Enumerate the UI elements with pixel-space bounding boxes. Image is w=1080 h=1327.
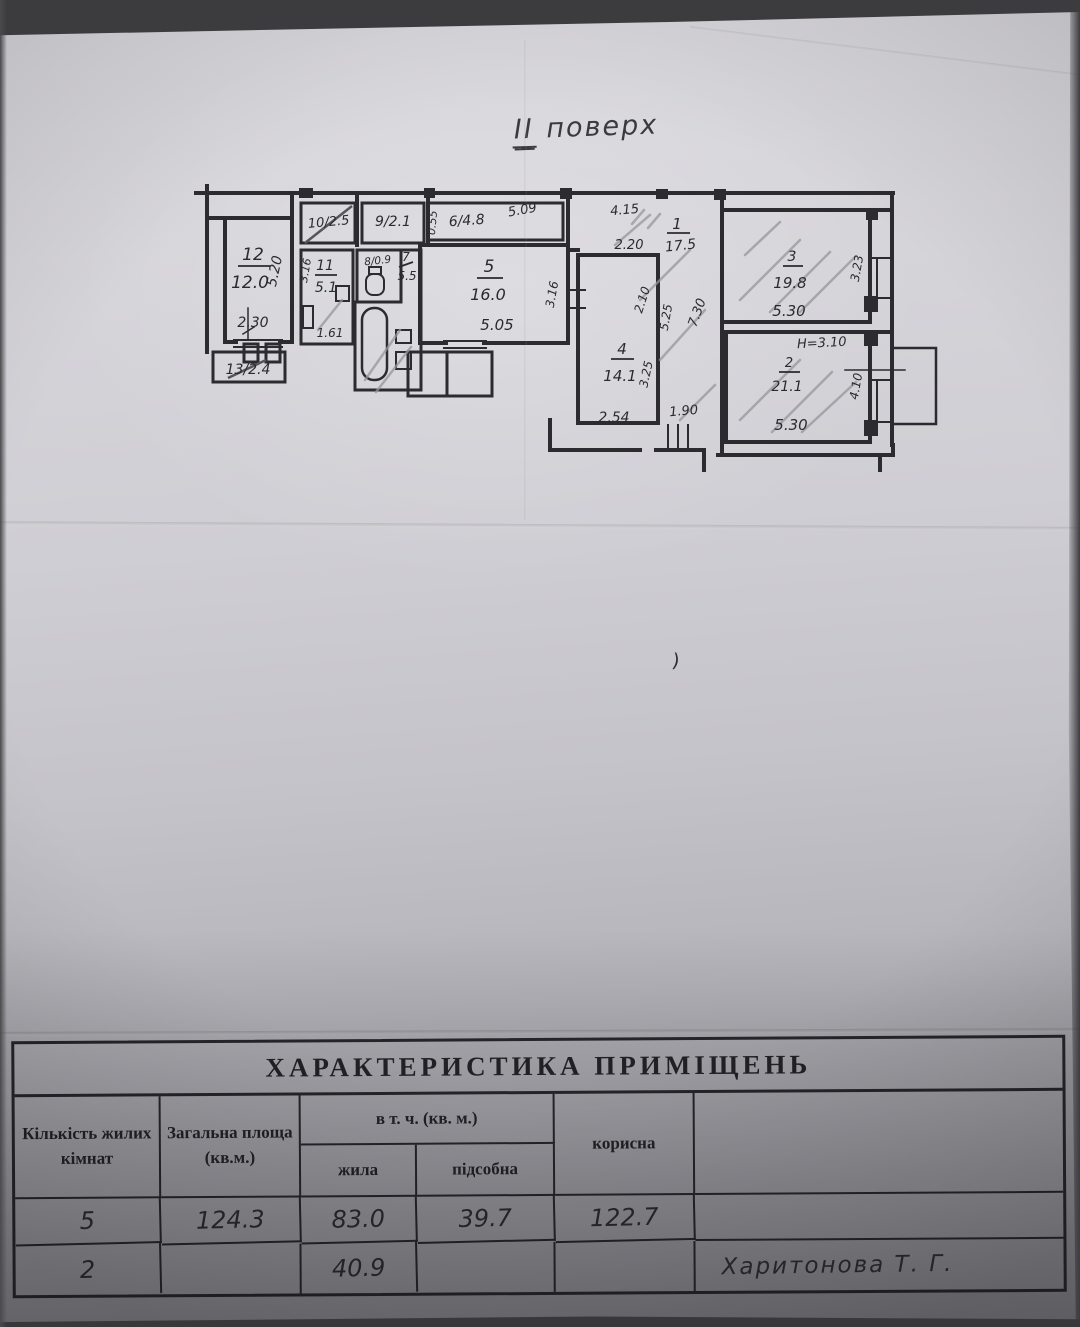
dim-2-20: 2.20 bbox=[615, 238, 644, 253]
room5-window bbox=[444, 341, 486, 348]
row2-room-count: 2 bbox=[15, 1243, 162, 1296]
pillar bbox=[656, 189, 668, 199]
header-total-area: Загальна площа (кв.м.) bbox=[161, 1095, 302, 1198]
header-useful: корисна bbox=[555, 1093, 696, 1196]
room11-fixture bbox=[303, 306, 313, 328]
dim-1-90: 1.90 bbox=[669, 403, 699, 420]
row2-total-area bbox=[161, 1243, 301, 1294]
dim-7-30: 7.30 bbox=[686, 297, 710, 329]
room3-area: 19.8 bbox=[773, 274, 806, 292]
row1-total-area: 124.3 bbox=[161, 1196, 302, 1245]
hatch bbox=[740, 222, 855, 312]
background-edge-left bbox=[0, 0, 7, 1327]
room3-number: 3 bbox=[788, 249, 797, 265]
row2-living-area: 40.9 bbox=[301, 1242, 418, 1295]
dim-2-54: 2.54 bbox=[598, 410, 629, 426]
header-including: в т. ч. (кв. м.) bbox=[301, 1094, 555, 1146]
dim-4-10: 4.10 bbox=[847, 372, 865, 401]
scanned-floorplan-document: ІІ поверх bbox=[0, 0, 1080, 1327]
pillar bbox=[866, 208, 878, 220]
dim-4-15: 4.15 bbox=[610, 202, 640, 219]
room2-area: 21.1 bbox=[771, 379, 802, 395]
row1-note bbox=[695, 1193, 1063, 1241]
corridor1-area: 17.5 bbox=[664, 236, 697, 255]
room8-label: 8/0.9 bbox=[364, 254, 392, 269]
room7-area: 5.5 bbox=[397, 269, 416, 283]
room4-area: 14.1 bbox=[603, 367, 636, 385]
room10-label: 10/2.5 bbox=[307, 213, 350, 232]
bathtub bbox=[362, 308, 387, 380]
entrance-steps bbox=[668, 425, 688, 450]
room2-window bbox=[871, 380, 891, 422]
header-note bbox=[695, 1091, 1064, 1195]
row2-aux-area bbox=[417, 1242, 555, 1293]
room12-area: 12.0 bbox=[231, 273, 269, 293]
room11-area: 5.1 bbox=[315, 280, 337, 296]
dim-2-10: 2.10 bbox=[631, 285, 653, 315]
dim-5-30-a: 5.30 bbox=[772, 302, 805, 320]
right-balcony bbox=[892, 348, 936, 424]
dim-5-05: 5.05 bbox=[480, 316, 513, 334]
dim-0-55: 0.55 bbox=[425, 210, 440, 236]
pillar bbox=[299, 188, 313, 198]
table-title: ХАРАКТЕРИСТИКА ПРИМІЩЕНЬ bbox=[14, 1038, 1062, 1097]
corridor6-label: 6/4.8 bbox=[448, 212, 485, 230]
dim-1-61: 1.61 bbox=[317, 326, 344, 340]
dim-3-23: 3.23 bbox=[848, 254, 866, 283]
pillar bbox=[864, 296, 878, 312]
room12-number: 12 bbox=[242, 245, 264, 265]
table-grid: Кількість жилих кімнат Загальна площа (к… bbox=[15, 1091, 1064, 1295]
dim-5-20: 5.20 bbox=[264, 254, 286, 288]
pillar bbox=[864, 334, 878, 346]
row1-living-area: 83.0 bbox=[301, 1196, 418, 1245]
corridor1-number: 1 bbox=[672, 215, 682, 233]
room4-walls bbox=[578, 255, 658, 423]
fraction-bars bbox=[238, 233, 803, 372]
row1-aux-area: 39.7 bbox=[417, 1195, 556, 1244]
pillar bbox=[864, 420, 878, 436]
room5-number: 5 bbox=[484, 257, 495, 277]
pillar bbox=[560, 188, 572, 199]
dim-2-30: 2.30 bbox=[237, 315, 268, 331]
toilet bbox=[366, 274, 384, 295]
row1-useful-area: 122.7 bbox=[555, 1194, 696, 1243]
pillar bbox=[714, 189, 726, 200]
dim-3-16-a: 3.16 bbox=[297, 257, 314, 283]
signature: Харитонова Т. Г. bbox=[695, 1237, 1064, 1292]
row2-useful-area bbox=[555, 1241, 695, 1292]
ceiling-height: H=3.10 bbox=[797, 335, 847, 353]
room3-window bbox=[871, 258, 891, 298]
header-living: жила bbox=[301, 1145, 417, 1198]
header-room-count: Кількість жилих кімнат bbox=[15, 1096, 162, 1199]
plan-walls bbox=[196, 186, 936, 470]
room5-area: 16.0 bbox=[470, 285, 506, 304]
plan-labels: 12 12.0 5.20 2.30 13/2.4 10/2.5 9/2.1 11… bbox=[226, 201, 867, 434]
room13-label: 13/2.4 bbox=[226, 362, 271, 378]
toilet-tank bbox=[369, 267, 381, 274]
room9-label: 9/2.1 bbox=[375, 214, 411, 230]
bar bbox=[238, 233, 803, 372]
room7-number: 7 bbox=[402, 250, 410, 264]
right-outer-wall bbox=[870, 193, 892, 445]
row1-room-count: 5 bbox=[15, 1197, 162, 1246]
pillar bbox=[424, 188, 435, 198]
header-auxiliary: підсобна bbox=[417, 1144, 555, 1197]
dim-5-30-b: 5.30 bbox=[774, 416, 807, 434]
characteristics-table: ХАРАКТЕРИСТИКА ПРИМІЩЕНЬ Кількість жилих… bbox=[11, 1035, 1067, 1298]
room2-number: 2 bbox=[785, 356, 793, 371]
room11-number: 11 bbox=[316, 258, 334, 274]
room11-fixture bbox=[336, 286, 349, 301]
dim-3-16-b: 3.16 bbox=[543, 280, 561, 309]
room4-number: 4 bbox=[617, 340, 627, 358]
dim-3-25: 3.25 bbox=[636, 360, 655, 389]
left-outer-wall bbox=[207, 193, 225, 352]
